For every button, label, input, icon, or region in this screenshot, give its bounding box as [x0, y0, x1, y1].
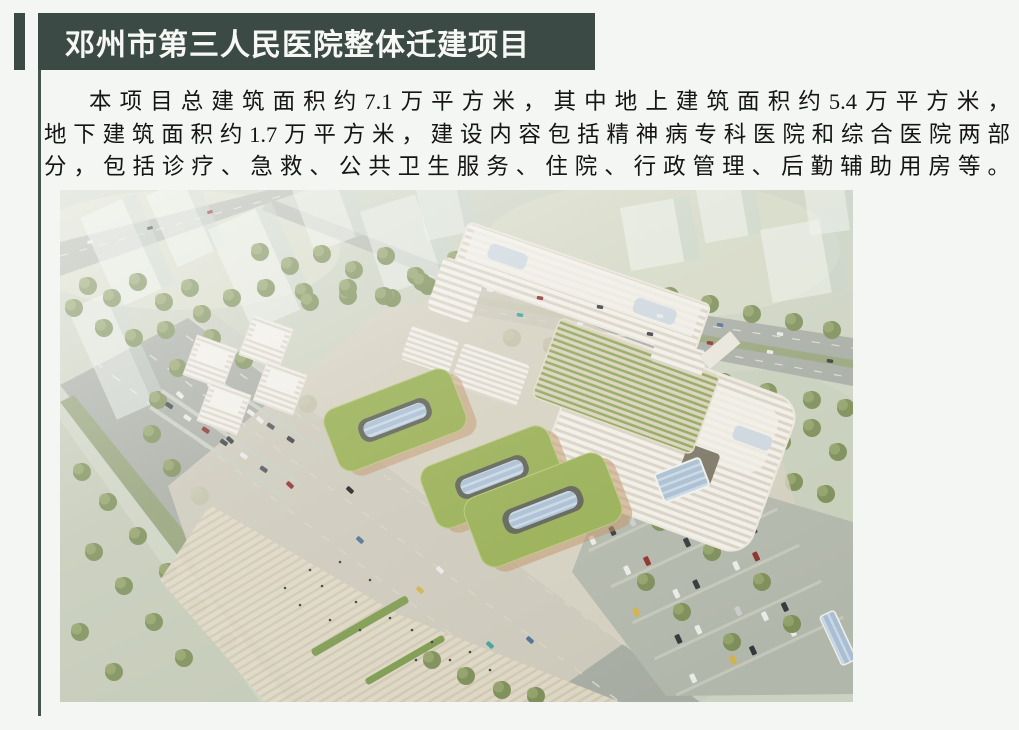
- accent-bar: [14, 13, 25, 70]
- haze-overlay: [60, 190, 853, 702]
- description-line-1: 本项目总建筑面积约7.1万平方米，其中地上建筑面积约5.4万平方米，: [44, 86, 1010, 119]
- description-line-3: 分，包括诊疗、急救、公共卫生服务、住院、行政管理、后勤辅助用房等。: [44, 151, 1010, 184]
- project-description: 本项目总建筑面积约7.1万平方米，其中地上建筑面积约5.4万平方米， 地下建筑面…: [44, 86, 1010, 184]
- content-area: 本项目总建筑面积约7.1万平方米，其中地上建筑面积约5.4万平方米， 地下建筑面…: [44, 86, 1010, 702]
- project-rendering-image: [60, 190, 853, 702]
- page-title-bar: 邓州市第三人民医院整体迁建项目: [38, 13, 595, 70]
- aerial-rendering-graphic: [60, 190, 853, 702]
- vertical-rule: [38, 70, 41, 716]
- description-line-2: 地下建筑面积约1.7万平方米，建设内容包括精神病专科医院和综合医院两部: [44, 119, 1010, 152]
- page-title: 邓州市第三人民医院整体迁建项目: [65, 20, 530, 64]
- project-slide: 邓州市第三人民医院整体迁建项目 本项目总建筑面积约7.1万平方米，其中地上建筑面…: [0, 0, 1019, 730]
